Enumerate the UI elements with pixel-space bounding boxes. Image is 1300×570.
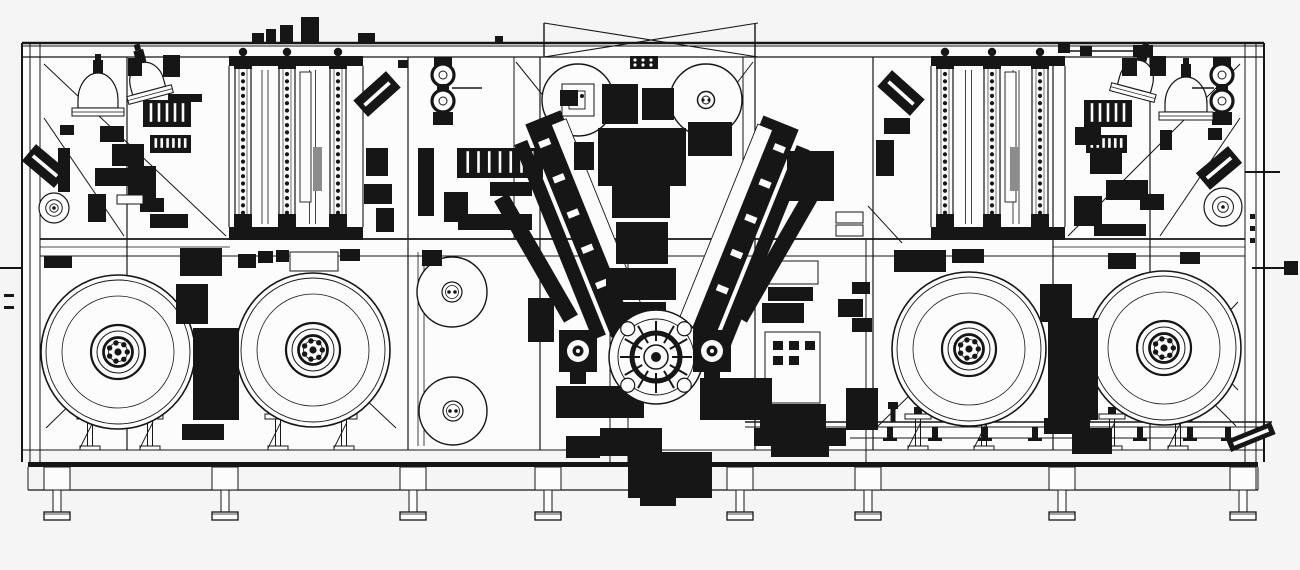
tower-chain-dot (241, 138, 245, 142)
tower-chain-dot (285, 189, 289, 193)
tower-chain-dot (1038, 94, 1042, 98)
tower-chain-dot (943, 130, 947, 134)
spiral-roll-center (52, 206, 56, 210)
reel-hub-center (114, 348, 121, 355)
tower-chain-dot (285, 116, 289, 120)
tower-chain-dot (336, 101, 340, 105)
leveling-foot-stem (53, 490, 61, 512)
reel-hub-bolt (113, 358, 118, 363)
tower-chain-dot (336, 72, 340, 76)
top-fixture (358, 33, 375, 43)
reel-hub-bolt (972, 354, 977, 359)
comb-feeder-slit (158, 103, 161, 122)
reel-hub-bolt (958, 342, 963, 347)
tower-column-cap (983, 58, 1001, 69)
component-block (700, 378, 772, 420)
support-stand-base (908, 446, 928, 450)
component-block (1150, 56, 1166, 76)
top-roller-dot (580, 94, 584, 98)
tower-chain-dot (990, 79, 994, 83)
guide-reel-hub-dot (448, 409, 452, 413)
comb-feeder-slit (509, 151, 512, 173)
tower-column-cap (1031, 58, 1049, 69)
leveling-foot-stem (409, 490, 417, 512)
comb-feeder-slit (1091, 103, 1094, 122)
comb-feeder-slit (184, 138, 187, 148)
component-block (876, 140, 894, 176)
tower-chain-dot (1038, 123, 1042, 127)
component-block (180, 248, 222, 276)
tower-chain-dot (241, 72, 245, 76)
tower-chain-dot (990, 108, 994, 112)
tower-chain-dot (1038, 189, 1042, 193)
top-fixture (301, 17, 319, 43)
tower-chain-dot (943, 123, 947, 127)
tower-chain-dot (943, 189, 947, 193)
tower-chain-dot (943, 108, 947, 112)
tower-chain-dot (990, 160, 994, 164)
tower-cap-knob (334, 48, 342, 56)
reel-hub-bolt (113, 340, 118, 345)
comb-feeder-slit (1114, 138, 1117, 148)
leveling-foot-block (727, 467, 753, 490)
conveyor-drop (932, 427, 938, 438)
tower-cap-knob (239, 48, 247, 56)
conveyor-drop (1137, 427, 1143, 438)
guide-reel-hub-dot (447, 290, 451, 294)
leveling-foot-block (400, 467, 426, 490)
tower-chain-dot (1038, 101, 1042, 105)
tower-chain-dot (241, 116, 245, 120)
tower-chain-dot (285, 108, 289, 112)
hopper-knob-cap (1183, 58, 1189, 64)
component-block (44, 256, 72, 268)
leveling-foot-pad (400, 512, 426, 520)
leveling-foot-pad (727, 512, 753, 520)
tower-chain-dot (1038, 72, 1042, 76)
component-block (238, 254, 256, 268)
press-unit-dot (710, 349, 714, 353)
reel-hub-bolt (107, 345, 112, 350)
tower-chain-dot (285, 152, 289, 156)
comb-feeder-slit (160, 138, 163, 148)
tower-chain-dot (1038, 152, 1042, 156)
center-stack-block (602, 84, 638, 124)
component-block (1094, 224, 1146, 236)
tower-chain-dot (241, 189, 245, 193)
guide-reel (417, 257, 487, 327)
tower-chain-dot (1038, 116, 1042, 120)
tower-chain-dot (990, 123, 994, 127)
tower-chain-dot (943, 79, 947, 83)
guide-reel (419, 377, 487, 445)
tower-chain-dot (1038, 203, 1042, 207)
tower-chain-dot (336, 152, 340, 156)
tower-chain-dot (285, 130, 289, 134)
component-block (566, 436, 600, 458)
reel-hub-bolt (107, 353, 112, 358)
reel-hub-bolt (964, 337, 969, 342)
tower-chain-dot (1038, 196, 1042, 200)
conveyor-drop (1225, 427, 1231, 438)
tower-chain-dot (943, 101, 947, 105)
component-block (1044, 418, 1090, 434)
leveling-foot-stem (864, 490, 872, 512)
tower-bottom-bar (931, 227, 1065, 240)
tower-chain-dot (943, 203, 947, 207)
tower-chain-dot (241, 123, 245, 127)
comb-feeder-slit (488, 151, 491, 173)
component-block (846, 388, 878, 430)
tower-chain-dot (241, 181, 245, 185)
reel-hub-bolt (972, 339, 977, 344)
component-block (768, 287, 813, 301)
support-stand-base (80, 446, 100, 450)
tower-chain-dot (241, 174, 245, 178)
comb-feeder-slit (150, 103, 153, 122)
component-block (789, 356, 799, 365)
reel-hub-bolt (316, 340, 321, 345)
tower-chain-dot (241, 196, 245, 200)
tower-cap-knob (283, 48, 291, 56)
component-block (1180, 252, 1200, 264)
tower-chain-dot (990, 72, 994, 76)
tower-chain-dot (990, 101, 994, 105)
tower-column-cap (329, 58, 347, 69)
turret-lobe (677, 322, 691, 336)
tower-chain-dot (990, 174, 994, 178)
tower-chain-dot (336, 94, 340, 98)
component-block (1074, 196, 1102, 226)
reel-hub-bolt (121, 342, 126, 347)
tower-chain-dot (943, 138, 947, 142)
spiral-roll-center (1221, 205, 1225, 209)
component-block (418, 148, 434, 216)
tower-white-column (300, 72, 311, 202)
component-block (1208, 128, 1222, 140)
reel-hub-bolt (121, 357, 126, 362)
tower-column-cap (278, 214, 296, 228)
conveyor-post (891, 408, 896, 422)
top-fixture (280, 25, 293, 43)
tower-chain-dot (943, 145, 947, 149)
support-stand-base (268, 446, 288, 450)
conveyor-drop-foot (1133, 438, 1147, 441)
conveyor-drop-foot (928, 438, 942, 441)
guide-reel-hub-dot (454, 409, 458, 413)
leveling-foot-pad (1230, 512, 1256, 520)
comb-feeder-slit (166, 103, 169, 122)
turret-lobe (621, 378, 635, 392)
tower-chain-dot (943, 196, 947, 200)
tower-chain-dot (336, 174, 340, 178)
tower-column-cap (983, 214, 1001, 228)
component-block (1250, 226, 1255, 231)
component-block (128, 166, 156, 198)
conveyor-drop-foot (1183, 438, 1197, 441)
tower-bottom-bar (229, 227, 363, 240)
tower-column-cap (936, 58, 954, 69)
tower-chain-dot (285, 79, 289, 83)
hopper-knob-cap (95, 54, 101, 60)
tower-gray-bar (1010, 147, 1019, 191)
tower-chain-dot (336, 123, 340, 127)
conveyor-drop (887, 427, 893, 438)
tower-chain-dot (241, 87, 245, 91)
center-stack-block (560, 90, 578, 106)
component-block (258, 251, 273, 263)
reel-hub-bolt (1153, 349, 1158, 354)
tower-chain-dot (241, 108, 245, 112)
component-block (952, 249, 984, 263)
reel-hub-bolt (308, 338, 313, 343)
reel-hub-center (309, 346, 316, 353)
comb-feeder-slit (172, 138, 175, 148)
tower-chain-dot (990, 145, 994, 149)
tower-chain-dot (943, 87, 947, 91)
tower-chain-dot (336, 196, 340, 200)
leveling-foot-block (212, 467, 238, 490)
conveyor-drop-foot (1028, 438, 1042, 441)
tower-cap-knob (1036, 48, 1044, 56)
leveling-foot-pad (535, 512, 561, 520)
tower-chain-dot (336, 138, 340, 142)
winding-turret-center (651, 352, 661, 362)
tower-chain-dot (1038, 138, 1042, 142)
component-block (128, 58, 142, 76)
tower-chain-dot (990, 152, 994, 156)
tower-chain-dot (285, 123, 289, 127)
top-roller-dot (701, 98, 704, 101)
tower-chain-dot (943, 72, 947, 76)
center-stack-block (616, 222, 668, 264)
tower-chain-dot (943, 181, 947, 185)
top-fixture (252, 33, 264, 43)
comb-feeder-slit (174, 103, 177, 122)
tower-cap-knob (941, 48, 949, 56)
tower-chain-dot (336, 108, 340, 112)
component-block (600, 428, 662, 456)
connector-dot (633, 63, 636, 66)
tower-gray-bar (313, 147, 322, 191)
tower-column-cap (936, 214, 954, 228)
tower-chain-dot (285, 196, 289, 200)
component-block (276, 250, 289, 262)
roller-stack-roller (432, 90, 454, 112)
leveling-foot-stem (1239, 490, 1247, 512)
tower-chain-dot (990, 138, 994, 142)
leveling-foot-block (1049, 467, 1075, 490)
comb-feeder-slit (178, 138, 181, 148)
component-block (88, 194, 106, 222)
component-block (150, 214, 188, 228)
support-stand-base (974, 446, 994, 450)
tower-column-cap (234, 214, 252, 228)
tower-column-cap (1031, 214, 1049, 228)
conveyor-drop-foot (978, 438, 992, 441)
tower-chain-dot (336, 181, 340, 185)
roller-stack-base (433, 112, 453, 125)
tower-chain-dot (285, 138, 289, 142)
tower-chain-dot (990, 203, 994, 207)
tower-chain-dot (241, 145, 245, 149)
press-unit-dot (576, 349, 580, 353)
reel-hub-bolt (1159, 354, 1164, 359)
reel-hub-bolt (1153, 341, 1158, 346)
connector-dot (633, 58, 636, 61)
tower-chain-dot (241, 101, 245, 105)
comb-feeder-slit (182, 103, 185, 122)
component-block (364, 184, 392, 204)
tower-chain-dot (1038, 108, 1042, 112)
connector-dot (649, 63, 652, 66)
leveling-foot-block (855, 467, 881, 490)
component-block (1250, 214, 1255, 219)
tower-chain-dot (943, 116, 947, 120)
reel-hub-center (1160, 344, 1167, 351)
component-block (112, 144, 144, 166)
component-block (884, 118, 910, 134)
component-block (398, 60, 408, 68)
tower-chain-dot (285, 101, 289, 105)
tower-cap-knob (988, 48, 996, 56)
support-stand-top (1099, 414, 1125, 419)
component-block (838, 299, 863, 317)
tower-chain-dot (285, 181, 289, 185)
reel-hub-bolt (302, 351, 307, 356)
component-block (528, 298, 554, 342)
tower-chain-dot (943, 94, 947, 98)
tower-chain-dot (285, 145, 289, 149)
component-block (4, 306, 14, 309)
tower-chain-dot (241, 130, 245, 134)
component-block (140, 198, 164, 212)
component-block (376, 208, 394, 232)
component-block (773, 341, 783, 350)
component-block (754, 428, 846, 446)
reel-hub-center (965, 345, 972, 352)
tower-chain-dot (990, 189, 994, 193)
tower-chain-dot (241, 160, 245, 164)
tower-chain-dot (990, 116, 994, 120)
tower-column-cap (234, 58, 252, 69)
component-block (340, 249, 360, 261)
comb-feeder-slit (154, 138, 157, 148)
roller-stack-roller (432, 64, 454, 86)
comb-feeder-slit (1107, 103, 1110, 122)
roller-stack-base (1212, 112, 1232, 125)
tower-chain-dot (336, 145, 340, 149)
component-block (852, 318, 872, 332)
tower-chain-dot (943, 174, 947, 178)
component-block (836, 225, 863, 236)
component-block (422, 250, 442, 266)
component-block (4, 294, 14, 297)
reel-hub-bolt (1167, 353, 1172, 358)
component-block (1090, 150, 1122, 174)
reel-hub-bolt (302, 343, 307, 348)
machine-engineering-drawing (0, 0, 1300, 570)
tower-chain-dot (285, 174, 289, 178)
tower-chain-dot (990, 196, 994, 200)
reel-hub-bolt (1167, 338, 1172, 343)
conveyor-drop (982, 427, 988, 438)
tower-chain-dot (241, 167, 245, 171)
component-block (290, 252, 338, 271)
component-block (490, 182, 532, 196)
comb-feeder-slit (166, 138, 169, 148)
support-stand-top (905, 414, 931, 419)
conveyor-post-knob (888, 402, 898, 409)
component-block (100, 126, 124, 142)
leveling-foot-pad (1049, 512, 1075, 520)
tower-chain-dot (336, 87, 340, 91)
comb-feeder-slit (1108, 138, 1111, 148)
comb-feeder-slit (466, 151, 469, 173)
tower-chain-dot (1038, 160, 1042, 164)
component-block (1160, 130, 1172, 150)
component-block (894, 250, 946, 272)
component-block (1075, 127, 1101, 145)
top-fixture (1133, 45, 1153, 57)
tower-chain-dot (336, 130, 340, 134)
leveling-foot-pad (855, 512, 881, 520)
leveling-foot-pad (212, 512, 238, 520)
tower-chain-dot (943, 160, 947, 164)
tower-chain-dot (336, 167, 340, 171)
tower-chain-dot (285, 87, 289, 91)
comb-feeder-slit (1115, 103, 1118, 122)
tower-chain-dot (990, 167, 994, 171)
reel-hub-bolt (316, 355, 321, 360)
component-block (1122, 58, 1137, 76)
reel-hub-bolt (1159, 336, 1164, 341)
component-block (176, 284, 208, 324)
component-block (1040, 284, 1072, 322)
component-block (773, 356, 783, 365)
leveling-foot-block (44, 467, 70, 490)
tower-chain-dot (1038, 130, 1042, 134)
connector-dot (641, 63, 644, 66)
tower-chain-dot (990, 130, 994, 134)
tower-chain-dot (1038, 167, 1042, 171)
component-block (628, 452, 712, 498)
tower-chain-dot (990, 94, 994, 98)
conveyor-drop (1187, 427, 1193, 438)
comb-feeder-slit (1120, 138, 1123, 148)
leveling-foot-block (535, 467, 561, 490)
tower-chain-dot (336, 203, 340, 207)
component-block (789, 341, 799, 350)
tower-chain-dot (1038, 87, 1042, 91)
tower-chain-dot (285, 203, 289, 207)
tower-chain-dot (1038, 181, 1042, 185)
component-block (1108, 253, 1136, 269)
center-stack-block (606, 268, 676, 300)
component-block (182, 424, 224, 440)
reel-hub-bolt (125, 349, 130, 354)
tower-chain-dot (285, 160, 289, 164)
tower-chain-dot (943, 167, 947, 171)
conveyor-drop (1032, 427, 1038, 438)
support-stand-base (1168, 446, 1188, 450)
component-block (193, 328, 239, 420)
tower-chain-dot (336, 116, 340, 120)
top-fixture (266, 29, 276, 43)
support-stand-base (334, 446, 354, 450)
leveling-foot-stem (544, 490, 552, 512)
component-block (640, 498, 676, 506)
